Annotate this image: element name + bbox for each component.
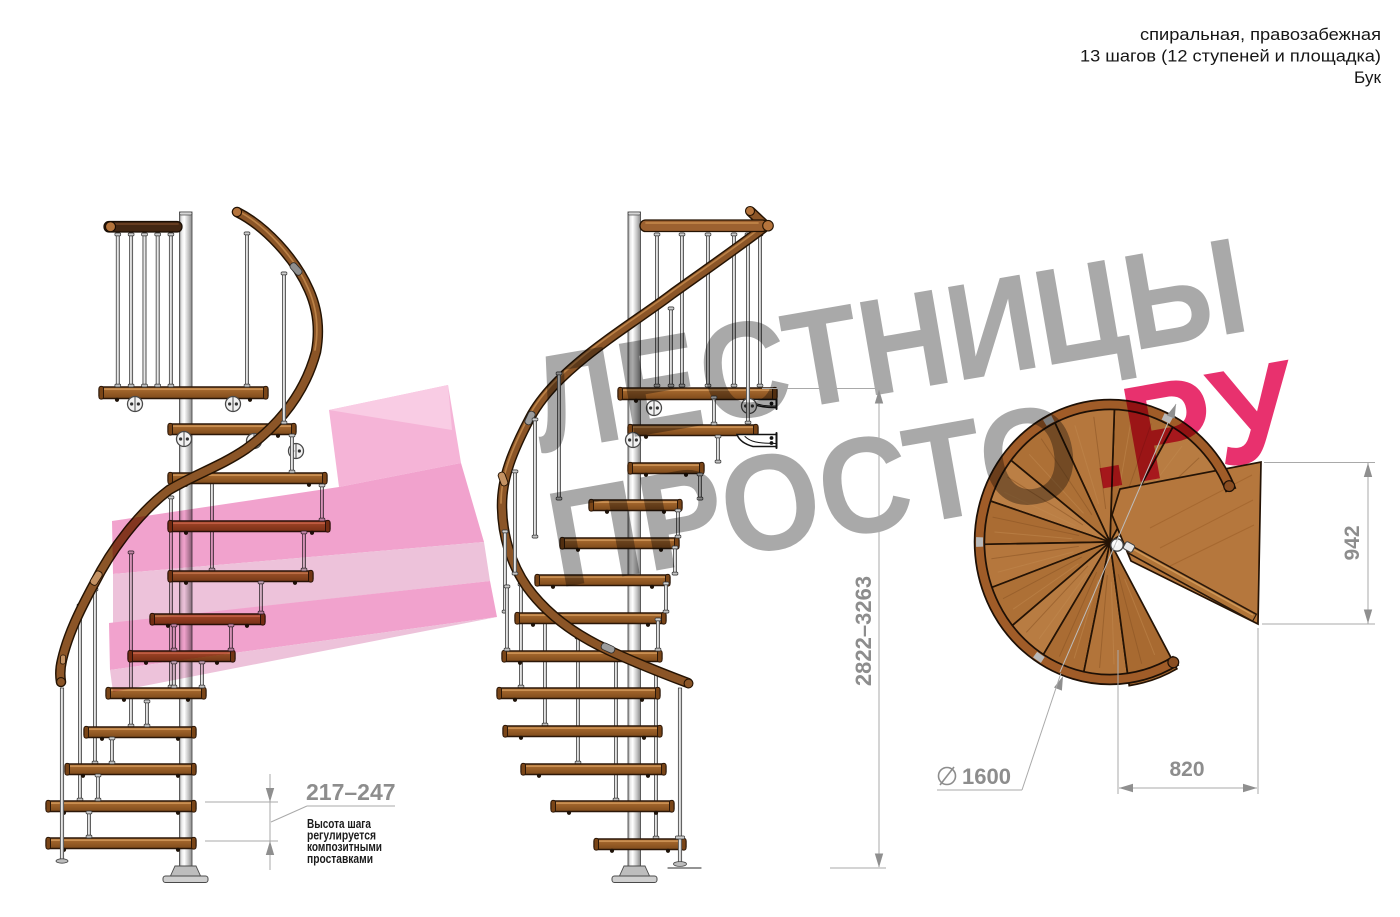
- svg-text:217–247: 217–247: [306, 779, 396, 805]
- svg-text:942: 942: [1341, 525, 1364, 560]
- svg-text:проставками: проставками: [307, 851, 373, 866]
- svg-text:820: 820: [1169, 758, 1204, 781]
- svg-text:13 шагов (12 ступеней и площад: 13 шагов (12 ступеней и площадка): [1080, 48, 1381, 66]
- svg-text:2822–3263: 2822–3263: [851, 576, 876, 686]
- svg-text:Бук: Бук: [1354, 69, 1382, 87]
- svg-text:1600: 1600: [962, 764, 1011, 789]
- svg-text:спиральная, правозабежная: спиральная, правозабежная: [1140, 26, 1381, 44]
